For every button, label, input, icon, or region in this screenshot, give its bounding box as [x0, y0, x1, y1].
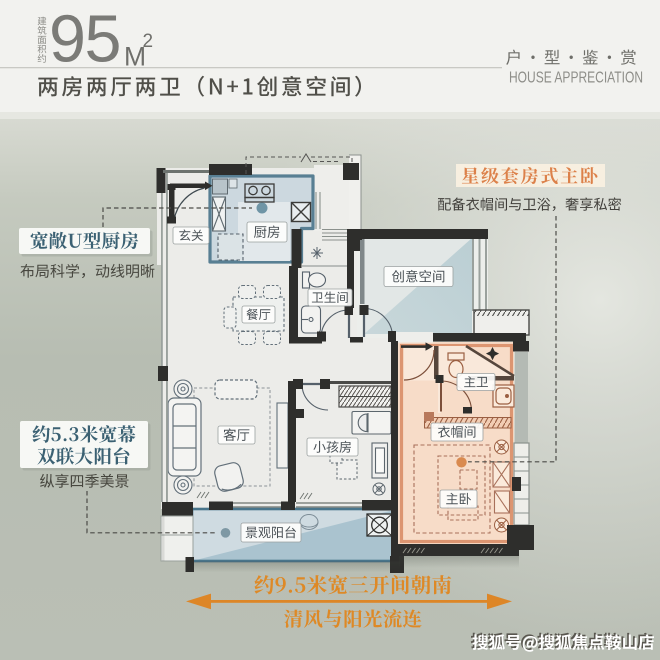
svg-text:2: 2 — [143, 31, 154, 52]
svg-text:95: 95 — [49, 3, 120, 77]
svg-text:HOUSE APPRECIATION: HOUSE APPRECIATION — [509, 70, 643, 87]
